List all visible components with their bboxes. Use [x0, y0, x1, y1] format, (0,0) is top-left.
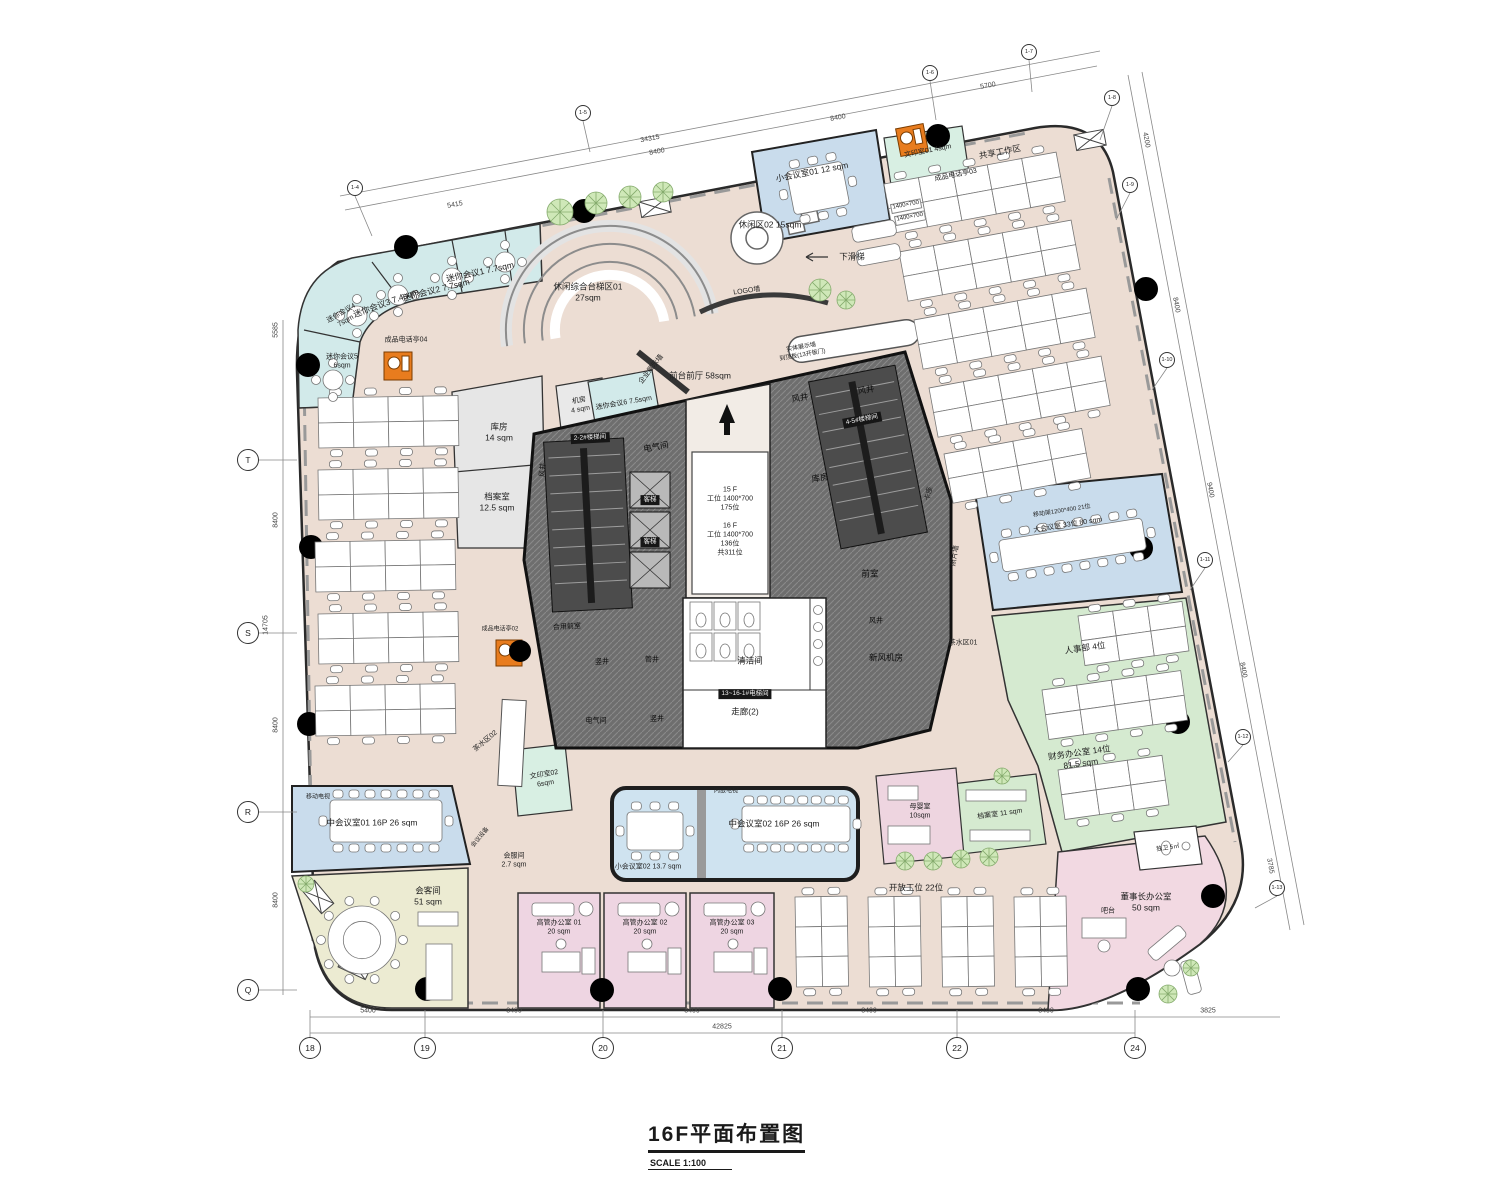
- dim: 8400: [506, 1008, 522, 1015]
- floor-plan-16f: 迷你会议1 7.7sqm 迷你会议2 7.7sqm 迷你会议3 7.4sqm 迷…: [0, 0, 1507, 1185]
- grid-bubble-22: 22: [946, 1037, 968, 1059]
- room-label: 休闲综合台梯区0127sqm: [554, 281, 623, 302]
- room-label: 合用前室: [553, 623, 581, 633]
- grid-bubble: 1-4: [347, 180, 363, 196]
- dim: 5585: [273, 322, 280, 338]
- grid-bubble-19: 19: [414, 1037, 436, 1059]
- room-label: 成品电话亭02: [482, 626, 519, 634]
- room-label: 内嵌电视: [714, 788, 738, 796]
- room-label: 走廊(2): [731, 707, 758, 718]
- elevator-label: 客梯: [641, 537, 660, 547]
- room-label: 风井: [539, 463, 549, 478]
- title-block: 16F平面布置图 SCALE 1:100: [648, 1118, 805, 1171]
- dim-total: 42825: [712, 1024, 731, 1031]
- room-label: 董事长办公室50 sqm: [1120, 891, 1171, 912]
- room-label: 新风机房: [869, 653, 903, 664]
- floor-plan-graphics: [0, 0, 1507, 1185]
- grid-bubble-Q: Q: [237, 979, 259, 1001]
- room-label: 茶水区01: [949, 640, 978, 649]
- tea-counter-02: [498, 699, 526, 786]
- room-label: 机房4 sqm: [569, 396, 591, 417]
- grid-bubble-21: 21: [771, 1037, 793, 1059]
- room-label: 高管办公室 0120 sqm: [537, 919, 582, 937]
- room-label: 清洁间: [737, 656, 763, 667]
- lift-lobby-label: 13~16-1#电梯间: [718, 689, 771, 699]
- room-label: 档案室12.5 sqm: [480, 491, 515, 512]
- room-label: 高管办公室 0320 sqm: [710, 919, 755, 937]
- room-label: 小会议室02 13.7 sqm: [615, 864, 682, 873]
- grid-bubble-20: 20: [592, 1037, 614, 1059]
- grid-bubble-R: R: [237, 801, 259, 823]
- room-label: 库房14 sqm: [485, 421, 513, 442]
- room-label: 中会议室01 16P 26 sqm: [326, 818, 417, 829]
- room-label: 前台前厅 58sqm: [669, 371, 731, 382]
- room-label: 竖井: [650, 716, 664, 725]
- grid-bubble-18: 18: [299, 1037, 321, 1059]
- room-label: 吧台: [1101, 908, 1115, 917]
- room-label: 高管办公室 0220 sqm: [623, 919, 668, 937]
- grid-bubble-T: T: [237, 449, 259, 471]
- dim: 5400: [360, 1008, 376, 1015]
- grid-bubble: 1-6: [922, 65, 938, 81]
- page-title: 16F平面布置图: [648, 1118, 805, 1153]
- room-label: 竖井: [595, 659, 609, 668]
- dim: 8400: [273, 717, 280, 733]
- room-label: 会服间2.7 sqm: [502, 852, 527, 870]
- stair-label: 2-2#楼梯间: [571, 432, 610, 444]
- room-label: 下滑梯: [839, 252, 865, 263]
- dim: 8400: [273, 892, 280, 908]
- grid-bubble: 1-13: [1269, 880, 1285, 896]
- grid-bubble: 1-11: [1197, 552, 1213, 568]
- room-label: 电气间: [586, 718, 607, 727]
- room-label: 迷你会议56sqm: [326, 353, 358, 371]
- dim: 8400: [1038, 1008, 1054, 1015]
- room-label: 中会议室02 16P 26 sqm: [728, 819, 819, 830]
- grid-bubble: 1-7: [1021, 44, 1037, 60]
- room-label: 移动电视: [306, 794, 330, 802]
- room-label: 母婴室10sqm: [909, 803, 930, 821]
- scale-label: SCALE 1:100: [648, 1157, 732, 1170]
- grid-bubble-S: S: [237, 622, 259, 644]
- dim: 14705: [263, 615, 270, 634]
- grid-bubble: 1-9: [1122, 177, 1138, 193]
- grid-bubble: 1-10: [1159, 352, 1175, 368]
- grid-bubble: 1-5: [575, 105, 591, 121]
- room-label: 成品电话亭04: [385, 337, 428, 346]
- room-label: 风井: [869, 618, 883, 627]
- elevators: [630, 472, 670, 588]
- dim: 8400: [684, 1008, 700, 1015]
- stair-left: [544, 438, 633, 612]
- grid-bubble: 1-8: [1104, 90, 1120, 106]
- dim: 3825: [1200, 1008, 1216, 1015]
- room-label: 会客间51 sqm: [414, 885, 442, 906]
- grid-bubble: 1-12: [1235, 729, 1251, 745]
- room-label: 前室: [861, 569, 878, 580]
- dim: 8400: [273, 512, 280, 528]
- core-info-panel: 15 F工位 1400*700175位 16 F工位 1400*700136位共…: [707, 486, 753, 557]
- room-label: 管井: [645, 657, 659, 666]
- dim: 8400: [861, 1008, 877, 1015]
- room-label: 开放工位 22位: [889, 883, 943, 894]
- room-label: 休闲区02 15sqm: [739, 220, 802, 231]
- grid-bubble-24: 24: [1124, 1037, 1146, 1059]
- elevator-label: 客梯: [641, 495, 660, 505]
